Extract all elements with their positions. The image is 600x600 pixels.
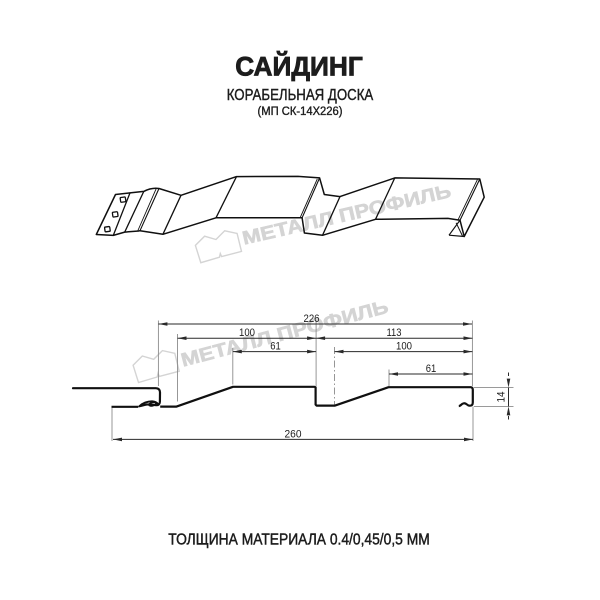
svg-text:100: 100 xyxy=(239,327,255,339)
svg-text:ТОЛЩИНА МАТЕРИАЛА 0.4/0,45/0,5: ТОЛЩИНА МАТЕРИАЛА 0.4/0,45/0,5 ММ xyxy=(168,531,430,548)
svg-text:(МП СК-14Х226): (МП СК-14Х226) xyxy=(258,106,343,118)
svg-text:113: 113 xyxy=(387,327,402,339)
svg-text:61: 61 xyxy=(426,363,437,375)
svg-text:226: 226 xyxy=(304,313,320,325)
svg-text:260: 260 xyxy=(285,428,302,440)
svg-text:САЙДИНГ: САЙДИНГ xyxy=(235,52,363,82)
svg-text:КОРАБЕЛЬНАЯ ДОСКА: КОРАБЕЛЬНАЯ ДОСКА xyxy=(227,87,374,104)
svg-text:61: 61 xyxy=(270,341,281,353)
svg-text:14: 14 xyxy=(496,392,508,403)
svg-text:100: 100 xyxy=(396,341,412,353)
